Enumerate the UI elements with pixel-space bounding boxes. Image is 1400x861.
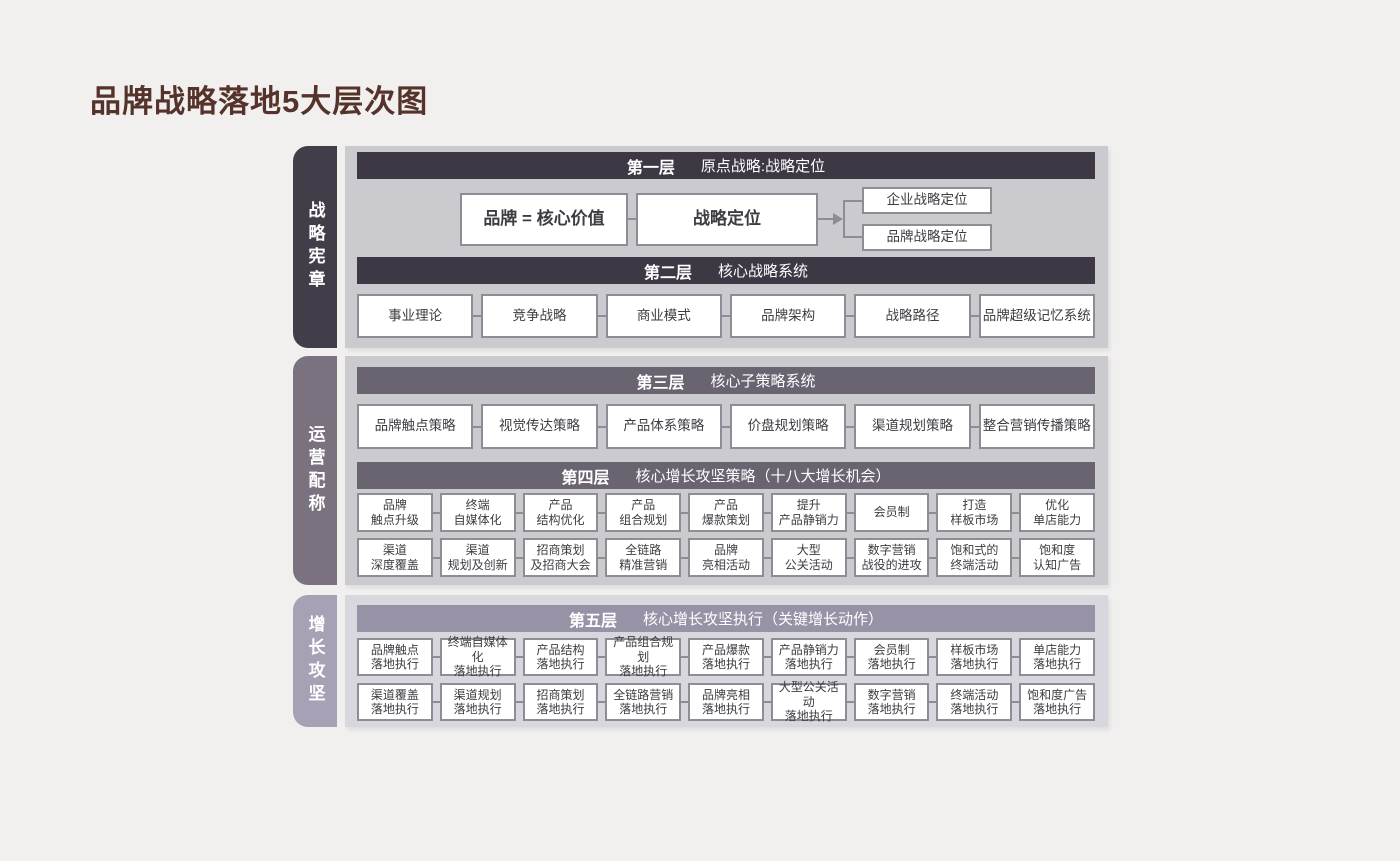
- connector-line: [843, 200, 862, 202]
- strategy-box: 品牌 亮相活动: [688, 538, 764, 577]
- strategy-box: 渠道规划策略: [854, 404, 970, 449]
- strategy-box: 品牌 触点升级: [357, 493, 433, 532]
- execution-box: 样板市场 落地执行: [936, 638, 1012, 676]
- section-tab-growth-assault: 增长攻坚: [293, 595, 337, 727]
- corporate-strategy-positioning-box: 企业战略定位: [862, 187, 992, 214]
- strategic-positioning-box: 战略定位: [636, 193, 818, 246]
- strategy-box: 渠道 规划及创新: [440, 538, 516, 577]
- strategy-box: 提升 产品静销力: [771, 493, 847, 532]
- section-tab-operations-match: 运营配称: [293, 356, 337, 585]
- execution-box: 单店能力 落地执行: [1019, 638, 1095, 676]
- execution-box: 会员制 落地执行: [854, 638, 930, 676]
- brand-strategy-diagram: 品牌战略落地5大层次图 战略宪章 运营配称 增长攻坚 第一层 原点战略:战略定位…: [0, 0, 1400, 861]
- execution-box: 产品爆款 落地执行: [688, 638, 764, 676]
- strategy-box: 渠道 深度覆盖: [357, 538, 433, 577]
- layer5-row1: 品牌触点 落地执行终端自媒体化 落地执行产品结构 落地执行产品组合规划 落地执行…: [357, 638, 1095, 676]
- execution-box: 招商策划 落地执行: [523, 683, 599, 721]
- strategy-box: 品牌超级记忆系统: [979, 294, 1095, 338]
- strategy-box: 全链路 精准营销: [605, 538, 681, 577]
- strategy-box: 饱和式的 终端活动: [936, 538, 1012, 577]
- layer2-row: 事业理论竞争战略商业模式品牌架构战略路径品牌超级记忆系统: [357, 294, 1095, 338]
- section-tab-label: 战略宪章: [307, 201, 324, 293]
- connector-line: [818, 218, 834, 220]
- strategy-box: 优化 单店能力: [1019, 493, 1095, 532]
- strategy-box: 整合营销传播策略: [979, 404, 1095, 449]
- execution-box: 饱和度广告 落地执行: [1019, 683, 1095, 721]
- strategy-box: 数字营销 战役的进攻: [854, 538, 930, 577]
- layer3-header: 第三层 核心子策略系统: [357, 367, 1095, 394]
- section-tab-label: 运营配称: [307, 425, 324, 517]
- strategy-box: 打造 样板市场: [936, 493, 1012, 532]
- strategy-box: 战略路径: [854, 294, 970, 338]
- strategy-box: 竞争战略: [481, 294, 597, 338]
- connector-line: [628, 218, 636, 220]
- layer5-subtitle: 核心增长攻坚执行（关键增长动作）: [643, 608, 883, 629]
- strategy-box: 产品 爆款策划: [688, 493, 764, 532]
- execution-box: 品牌触点 落地执行: [357, 638, 433, 676]
- execution-box: 品牌亮相 落地执行: [688, 683, 764, 721]
- strategy-box: 大型 公关活动: [771, 538, 847, 577]
- strategy-box: 品牌触点策略: [357, 404, 473, 449]
- execution-box: 终端自媒体化 落地执行: [440, 638, 516, 676]
- strategy-box: 产品 组合规划: [605, 493, 681, 532]
- layer3-subtitle: 核心子策略系统: [711, 370, 816, 391]
- layer4-header: 第四层 核心增长攻坚策略（十八大增长机会）: [357, 462, 1095, 489]
- strategy-box: 商业模式: [606, 294, 722, 338]
- layer2-header: 第二层 核心战略系统: [357, 257, 1095, 284]
- execution-box: 渠道规划 落地执行: [440, 683, 516, 721]
- strategy-box: 产品体系策略: [606, 404, 722, 449]
- execution-box: 全链路营销 落地执行: [605, 683, 681, 721]
- strategy-box: 终端 自媒体化: [440, 493, 516, 532]
- execution-box: 产品静销力 落地执行: [771, 638, 847, 676]
- execution-box: 数字营销 落地执行: [854, 683, 930, 721]
- layer4-tag: 第四层: [561, 464, 609, 488]
- layer3-row: 品牌触点策略视觉传达策略产品体系策略价盘规划策略渠道规划策略整合营销传播策略: [357, 404, 1095, 449]
- layer2-subtitle: 核心战略系统: [718, 260, 808, 281]
- layer1-tag: 第一层: [627, 154, 675, 178]
- layer5-tag: 第五层: [569, 607, 617, 631]
- page-title: 品牌战略落地5大层次图: [90, 76, 428, 121]
- section-tab-label: 增长攻坚: [307, 615, 324, 707]
- execution-box: 产品结构 落地执行: [523, 638, 599, 676]
- layer1-header: 第一层 原点战略:战略定位: [357, 152, 1095, 179]
- execution-box: 大型公关活动 落地执行: [771, 683, 847, 721]
- strategy-box: 视觉传达策略: [481, 404, 597, 449]
- strategy-box: 价盘规划策略: [730, 404, 846, 449]
- strategy-box: 会员制: [854, 493, 930, 532]
- bracket-line: [843, 200, 845, 238]
- layer5-row2: 渠道覆盖 落地执行渠道规划 落地执行招商策划 落地执行全链路营销 落地执行品牌亮…: [357, 683, 1095, 721]
- layer1-subtitle: 原点战略:战略定位: [701, 155, 825, 176]
- strategy-box: 产品 结构优化: [523, 493, 599, 532]
- layer4-row1: 品牌 触点升级终端 自媒体化产品 结构优化产品 组合规划产品 爆款策划提升 产品…: [357, 493, 1095, 532]
- layer5-header: 第五层 核心增长攻坚执行（关键增长动作）: [357, 605, 1095, 632]
- execution-box: 产品组合规划 落地执行: [605, 638, 681, 676]
- strategy-box: 事业理论: [357, 294, 473, 338]
- brand-core-value-box: 品牌 = 核心价值: [460, 193, 628, 246]
- execution-box: 终端活动 落地执行: [936, 683, 1012, 721]
- connector-line: [843, 236, 862, 238]
- strategy-box: 品牌架构: [730, 294, 846, 338]
- layer4-row2: 渠道 深度覆盖渠道 规划及创新招商策划 及招商大会全链路 精准营销品牌 亮相活动…: [357, 538, 1095, 577]
- strategy-box: 饱和度 认知广告: [1019, 538, 1095, 577]
- layer3-tag: 第三层: [636, 369, 684, 393]
- layer4-subtitle: 核心增长攻坚策略（十八大增长机会）: [636, 465, 891, 486]
- execution-box: 渠道覆盖 落地执行: [357, 683, 433, 721]
- brand-strategy-positioning-box: 品牌战略定位: [862, 224, 992, 251]
- layer2-tag: 第二层: [644, 259, 692, 283]
- strategy-box: 招商策划 及招商大会: [523, 538, 599, 577]
- arrow-right-icon: [833, 213, 843, 225]
- section-tab-strategy-charter: 战略宪章: [293, 146, 337, 348]
